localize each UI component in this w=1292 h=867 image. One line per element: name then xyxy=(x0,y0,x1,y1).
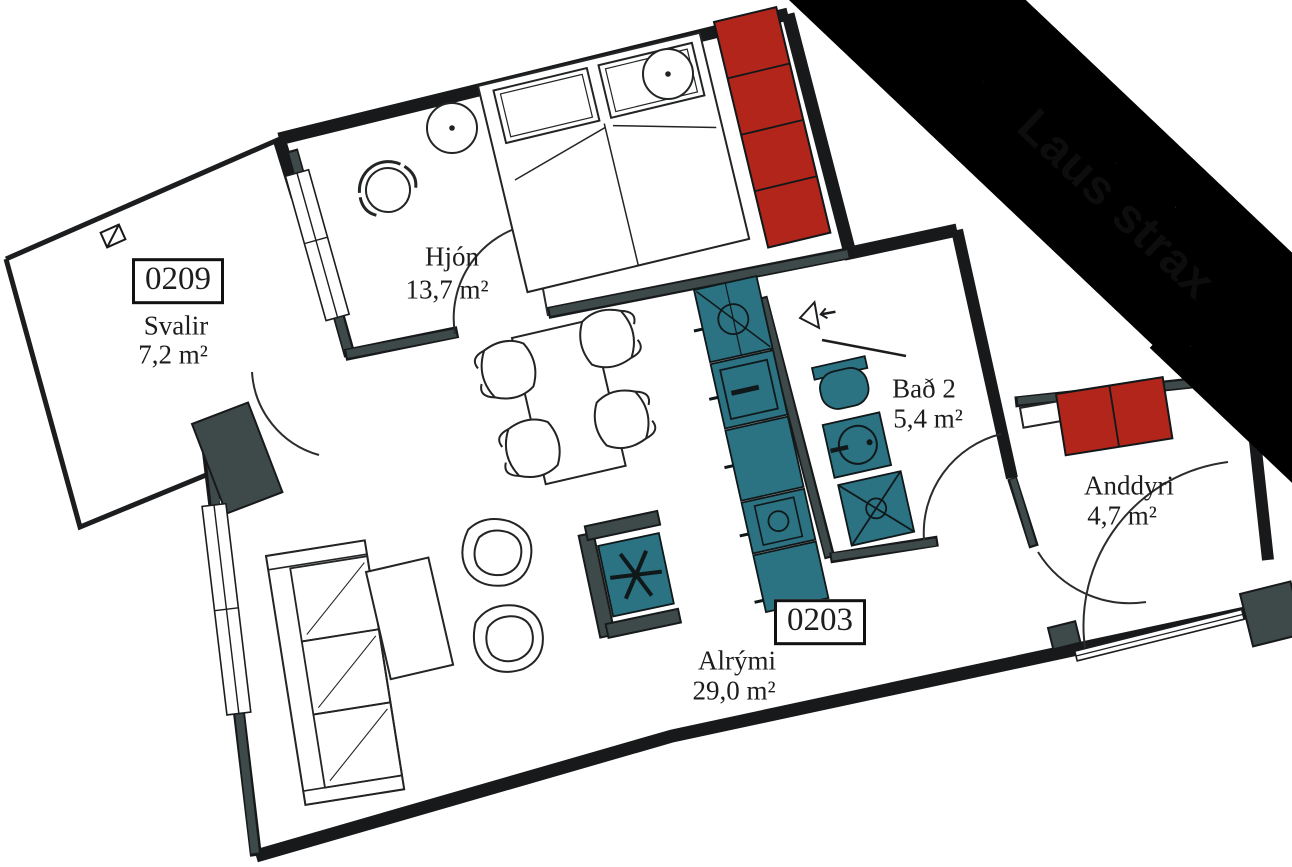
room-area-alrymi: 29,0 m² xyxy=(692,676,775,705)
room-name-bad2: Bað 2 xyxy=(892,374,956,403)
room-name-alrymi: Alrými xyxy=(698,646,776,675)
double-bed xyxy=(478,33,749,292)
chair-icon xyxy=(348,150,425,225)
floor-plan: Laus strax 0209 Svalir 7,2 m² Hjón 13,7 … xyxy=(0,0,1292,867)
room-area-svalir: 7,2 m² xyxy=(138,340,208,369)
unit-number-0203: 0203 xyxy=(774,599,866,645)
balcony-railing-top xyxy=(6,135,289,259)
nightstand-right-knob xyxy=(665,71,671,77)
unit-number-0209: 0209 xyxy=(132,258,224,304)
bath-door-arc xyxy=(924,434,1001,540)
bedroom-furniture xyxy=(348,7,831,292)
entrance-door-leaf xyxy=(1075,610,1244,661)
bath-right-wall xyxy=(957,230,1012,478)
vent-arrow-icon xyxy=(798,299,838,331)
wardrobe-anddyri xyxy=(1056,377,1172,455)
sink-icon xyxy=(823,412,891,477)
drain-icon xyxy=(101,225,126,248)
entrance-corner-block xyxy=(1240,581,1292,646)
armchair-1 xyxy=(458,515,535,590)
room-name-anddyri: Anddyri xyxy=(1084,471,1174,500)
room-name-svalir: Svalir xyxy=(144,311,209,340)
balcony-glazed-door xyxy=(285,170,349,321)
dining-set xyxy=(470,304,666,494)
room-name-hjon: Hjón xyxy=(425,242,479,271)
room-area-bad2: 5,4 m² xyxy=(893,404,963,433)
kitchen-counter xyxy=(685,276,828,614)
fireplace xyxy=(577,511,681,640)
room-area-hjon: 13,7 m² xyxy=(405,275,488,304)
living-window xyxy=(202,504,251,715)
armchair-2 xyxy=(472,603,545,674)
towel-rail xyxy=(822,340,906,356)
living-furniture xyxy=(266,304,681,805)
nightstand-left-knob xyxy=(449,125,455,131)
anddyri-door-arc xyxy=(1038,552,1146,603)
anddyri-furniture xyxy=(1020,377,1172,455)
floor-plan-drawing: Laus strax xyxy=(0,0,1292,867)
room-area-anddyri: 4,7 m² xyxy=(1087,501,1157,530)
